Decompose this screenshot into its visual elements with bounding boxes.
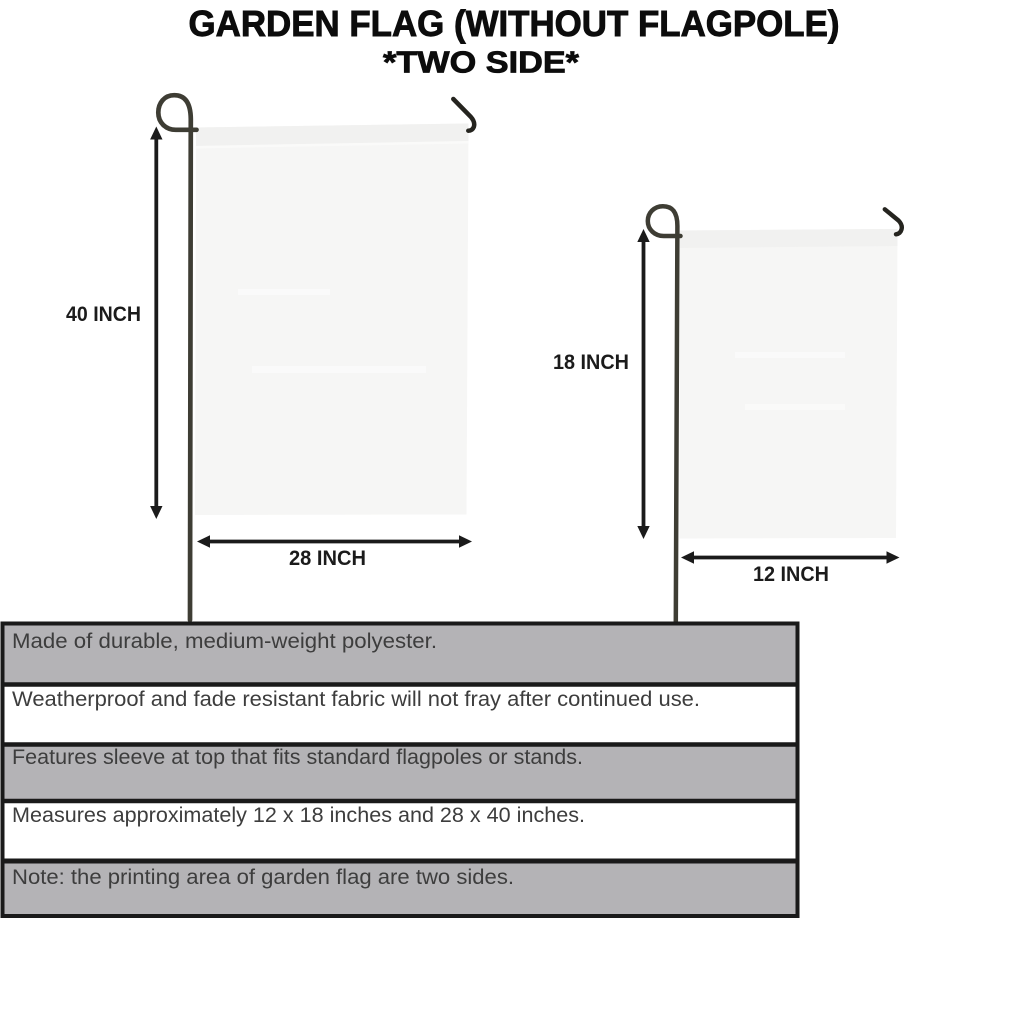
svg-text:12 INCH: 12 INCH xyxy=(753,563,829,586)
svg-text:Weatherproof and fade resistan: Weatherproof and fade resistant fabric w… xyxy=(12,687,700,711)
svg-text:*TWO SIDE*: *TWO SIDE* xyxy=(383,45,580,80)
svg-text:Made of durable, medium-weight: Made of durable, medium-weight polyester… xyxy=(12,629,437,653)
svg-text:Features sleeve at top that fi: Features sleeve at top that fits standar… xyxy=(12,745,583,769)
svg-text:GARDEN FLAG (WITHOUT FLAGPOLE): GARDEN FLAG (WITHOUT FLAGPOLE) xyxy=(189,3,840,44)
svg-text:28 INCH: 28 INCH xyxy=(289,547,366,570)
svg-text:Measures approximately 12 x 18: Measures approximately 12 x 18 inches an… xyxy=(12,803,585,827)
svg-text:18 INCH: 18 INCH xyxy=(553,351,629,374)
svg-text:Note: the printing area of gar: Note: the printing area of garden flag a… xyxy=(12,865,514,889)
svg-text:40 INCH: 40 INCH xyxy=(66,303,141,326)
